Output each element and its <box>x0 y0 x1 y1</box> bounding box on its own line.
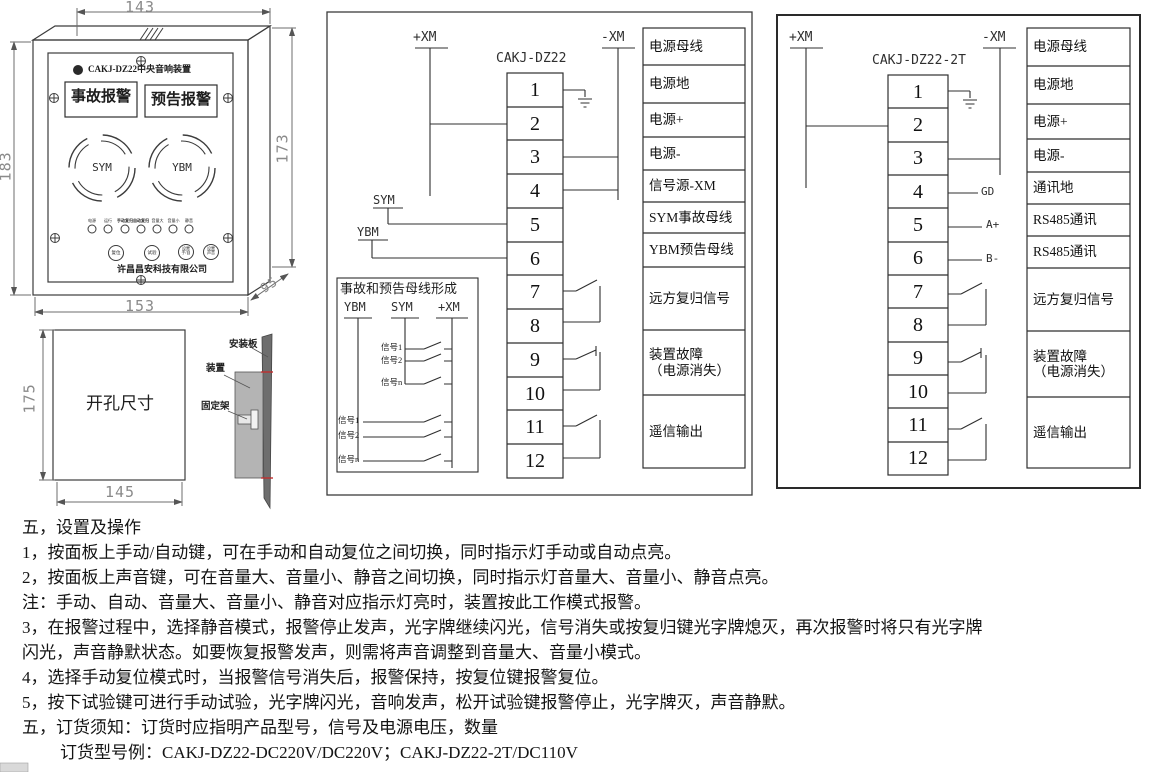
terminal-function-label: RS485通讯 <box>1033 204 1127 236</box>
mounting-side-view <box>224 334 273 508</box>
terminal-number: 8 <box>888 314 948 336</box>
terminal-number: 11 <box>888 414 948 436</box>
terminal-number: 4 <box>507 180 563 202</box>
speaker-ybm-label: YBM <box>165 162 199 174</box>
set-sound-button[interactable]: 设置 声音 <box>204 247 218 256</box>
panel-button-icons <box>109 245 219 261</box>
signal-label: 信号2 <box>338 431 359 441</box>
terminal-number: 6 <box>888 247 948 269</box>
terminal-number: 5 <box>888 214 948 236</box>
dz22-wiring <box>358 48 635 458</box>
instructions-block: 五，设置及操作 1，按面板上手动/自动键，可在手动和自动复位之间切换，同时指示灯… <box>22 513 1152 763</box>
terminal-number: 1 <box>888 81 948 103</box>
led-label: 静音 <box>182 219 196 223</box>
dim-height-left: 183 <box>0 146 14 186</box>
terminal-function-label: 电源+ <box>649 103 743 137</box>
dz22-2t-bus-minus-label: -XM <box>982 31 1005 46</box>
signal-label: 信号n <box>338 455 359 465</box>
formation-ybm-header: YBM <box>344 301 366 314</box>
terminal-function-label: YBM预告母线 <box>649 233 743 267</box>
terminal-function-label: RS485通讯 <box>1033 236 1127 268</box>
bracket-label: 固定架 <box>201 402 230 413</box>
dz22-title: CAKJ-DZ22 <box>496 52 566 67</box>
pin-gd-label: GD <box>981 186 994 198</box>
cutout-dim-width: 145 <box>98 484 142 501</box>
device-title: CAKJ-DZ22中央音响装置 <box>88 64 191 74</box>
mounting-plate-label: 安装板 <box>229 340 258 351</box>
terminal-number: 7 <box>507 281 563 303</box>
terminal-function-label: 遥信输出 <box>649 395 743 468</box>
instruction-line: 5，按下试验键可进行手动试验，光字牌闪光，音响发声，松开试验键报警停止，光字牌灭… <box>22 688 1152 713</box>
instruction-line: 4，选择手动复位模式时，当报警信号消失后，报警保持，按复位键报警复位。 <box>22 663 1152 688</box>
terminal-function-label: 电源+ <box>1033 104 1127 139</box>
accident-alarm-window: 事故报警 <box>65 89 137 106</box>
signal-label: 信号1 <box>381 343 402 353</box>
dim-width-top: 143 <box>120 0 160 16</box>
terminal-function-label: 装置故障 （电源消失） <box>649 330 743 395</box>
page-corner-artifact <box>0 763 28 772</box>
signal-label: 信号1 <box>338 416 359 426</box>
reset-button[interactable]: 复位 <box>109 250 123 255</box>
instruction-line: 3，在报警过程中，选择静音模式，报警停止发声，光字牌继续闪光，信号消失或按复归键… <box>22 613 1152 638</box>
switch-icon <box>948 283 986 325</box>
terminal-function-label: 装置故障 （电源消失） <box>1033 331 1127 397</box>
terminal-number: 3 <box>888 147 948 169</box>
switch-icon <box>563 346 600 390</box>
signal-label: 信号2 <box>381 356 402 366</box>
terminal-function-label: 电源母线 <box>649 28 743 65</box>
terminal-function-label: 电源地 <box>649 65 743 103</box>
forecast-alarm-window: 预告报警 <box>145 92 217 109</box>
switch-icon <box>948 348 986 393</box>
terminal-number: 11 <box>507 416 563 438</box>
terminal-number: 3 <box>507 146 563 168</box>
device-label: 装置 <box>206 364 225 375</box>
led-label: 音量小 <box>166 219 181 223</box>
terminal-number: 9 <box>888 347 948 369</box>
terminal-number: 10 <box>888 381 948 403</box>
test-button[interactable]: 试验 <box>145 250 159 255</box>
terminal-number: 6 <box>507 248 563 270</box>
dim-height-right: 173 <box>275 128 292 168</box>
terminal-function-label: 远方复归信号 <box>649 267 743 330</box>
terminal-function-label: 远方复归信号 <box>1033 268 1127 331</box>
pin-a-label: A+ <box>986 219 999 231</box>
instruction-line: 注：手动、自动、音量大、音量小、静音对应指示灯亮时，装置按此工作模式报警。 <box>22 588 1152 613</box>
terminal-function-label: 电源- <box>1033 139 1127 172</box>
dz22-2t-title: CAKJ-DZ22-2T <box>872 54 966 69</box>
terminal-number: 5 <box>507 214 563 236</box>
terminal-number: 12 <box>888 447 948 469</box>
terminal-number: 8 <box>507 315 563 337</box>
switch-icon <box>563 415 600 458</box>
terminal-function-label: SYM事故母线 <box>649 202 743 233</box>
formation-xm-header: +XM <box>438 301 460 314</box>
instructions-heading: 五，设置及操作 <box>22 513 1152 538</box>
led-label: 自动复归 <box>132 219 150 223</box>
ordering-note-line: 五，订货须知：订货时应指明产品型号，信号及电源电压，数量 <box>22 713 1152 738</box>
ground-icon <box>578 99 592 107</box>
terminal-number: 7 <box>888 281 948 303</box>
terminal-number: 4 <box>888 181 948 203</box>
formation-box-title: 事故和预告母线形成 <box>340 282 457 297</box>
pin-b-label: B- <box>986 253 999 265</box>
dz22-sym-label: SYM <box>373 194 395 207</box>
dz22-bus-minus-label: -XM <box>601 31 624 46</box>
led-indicator-icons <box>88 225 193 233</box>
terminal-function-label: 遥信输出 <box>1033 397 1127 468</box>
terminal-function-label: 电源地 <box>1033 66 1127 104</box>
terminal-number: 2 <box>888 114 948 136</box>
terminal-number: 1 <box>507 79 563 101</box>
led-label: 音量大 <box>150 219 165 223</box>
ordering-example-line: 订货型号例：CAKJ-DZ22-DC220V/DC220V；CAKJ-DZ22-… <box>22 738 1152 763</box>
dz22-bus-plus-label: +XM <box>413 31 436 46</box>
instruction-line: 2，按面板上声音键，可在音量大、音量小、静音之间切换，同时指示灯音量大、音量小、… <box>22 563 1152 588</box>
terminal-function-label: 电源- <box>649 137 743 170</box>
terminal-number: 10 <box>507 383 563 405</box>
terminal-number: 12 <box>507 450 563 472</box>
ground-icon <box>963 100 977 108</box>
terminal-function-label: 通讯地 <box>1033 172 1127 204</box>
switch-icon <box>563 280 600 322</box>
instruction-line: 1，按面板上手动/自动键，可在手动和自动复位之间切换，同时指示灯手动或自动点亮。 <box>22 538 1152 563</box>
terminal-function-label: 电源母线 <box>1033 28 1127 66</box>
brand-logo-icon <box>73 65 83 75</box>
terminal-number: 2 <box>507 113 563 135</box>
cutout-label: 开孔尺寸 <box>86 394 154 413</box>
switch-icon <box>948 418 986 460</box>
terminal-number: 9 <box>507 349 563 371</box>
speaker-sym-label: SYM <box>85 162 119 174</box>
formation-sym-header: SYM <box>391 301 413 314</box>
led-label: 电源 <box>85 219 99 223</box>
instruction-line: 闪光，声音静默状态。如要恢复报警发声，则需将声音调整到音量大、音量小模式。 <box>22 638 1152 663</box>
company-name: 许昌昌安科技有限公司 <box>117 264 207 274</box>
dz22-ybm-label: YBM <box>357 226 379 239</box>
signal-label: 信号n <box>381 378 402 388</box>
set-manual-auto-button[interactable]: 设置 手/自 <box>179 247 193 256</box>
datasheet-page: CAKJ-DZ22中央音响装置 事故报警 预告报警 SYM YBM 电源 运行 … <box>0 0 1159 772</box>
terminal-function-label: 信号源-XM <box>649 170 743 202</box>
cutout-dim-height: 175 <box>22 376 39 420</box>
led-label: 运行 <box>101 219 115 223</box>
dim-width-bottom: 153 <box>120 298 160 315</box>
dz22-2t-bus-plus-label: +XM <box>789 31 812 46</box>
